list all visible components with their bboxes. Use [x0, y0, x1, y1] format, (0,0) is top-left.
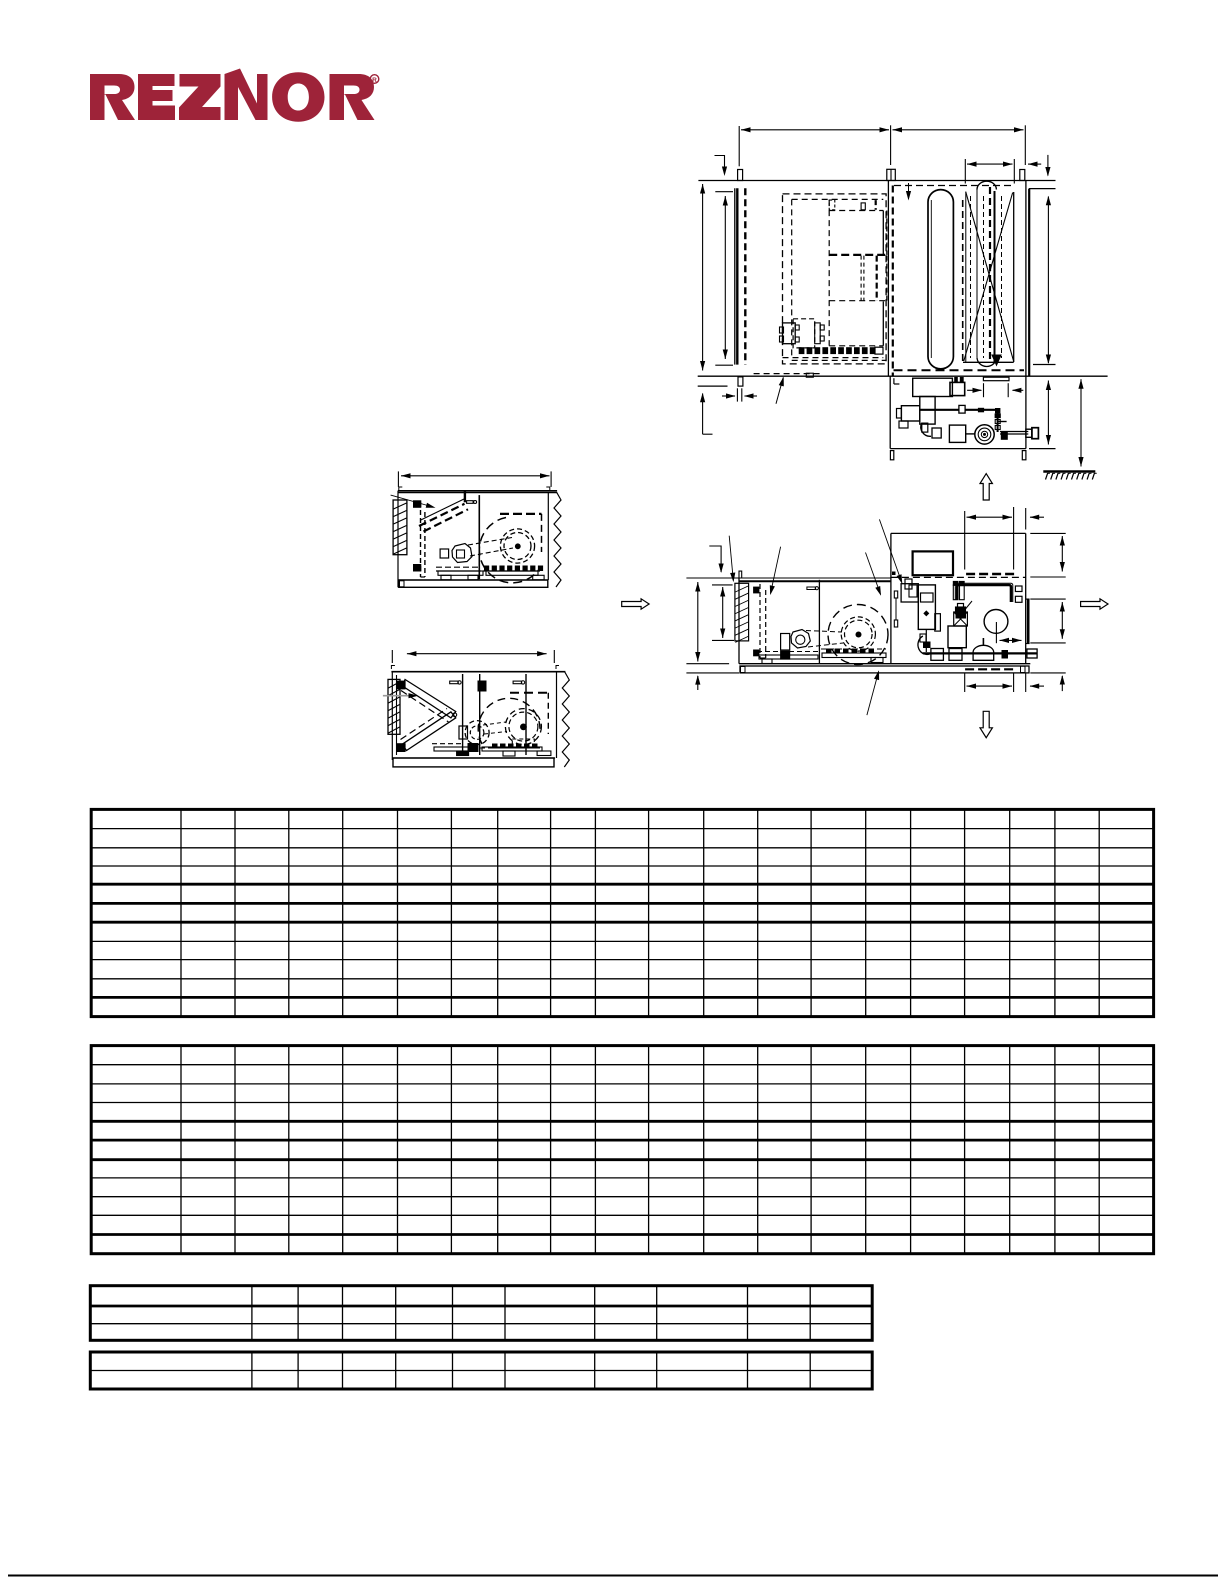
svg-text:R: R: [372, 77, 377, 84]
